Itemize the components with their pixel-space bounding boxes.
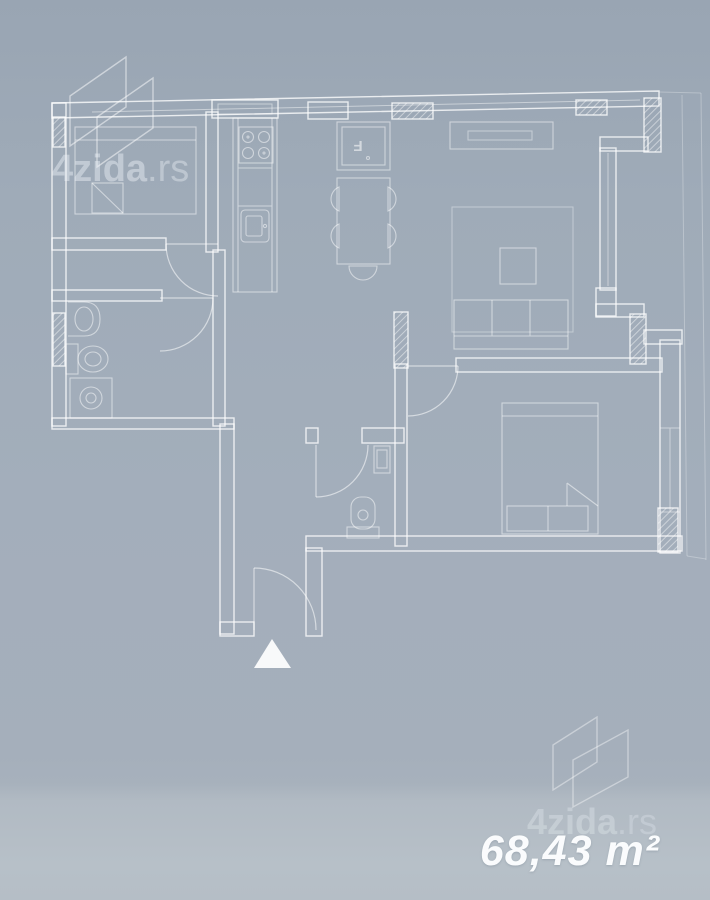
wall-wc-north [306,428,318,443]
floorplan-image: F 4zida.rs 4zida.rs 68,43 m² [0,0,710,900]
wall-corridor [213,250,225,426]
wall-bathroom-top [52,290,162,301]
wc-toilet [347,497,379,538]
wall-corridor [220,424,234,634]
wall-bathroom-bottom [52,418,234,429]
entrance-marker-triangle [254,639,291,668]
wall-hatch-column [394,312,408,368]
wall-hatch-window [53,117,65,147]
area-label: 68,43 m² [480,827,660,876]
wall-entrance-east [306,548,322,636]
bathroom-sink [68,302,100,336]
wall-hatch-pier [392,103,433,119]
wall-top [52,91,659,118]
wall-wc-bedroom2 [395,364,407,546]
terrace-outline [659,92,706,560]
wall-bedroom1-bottom [52,238,166,250]
window-glazing-bedroom2 [660,428,680,512]
watermark-brand: 4zida [52,148,147,190]
coffee-table [500,248,536,284]
window-frame-block [308,102,348,119]
wall-step [596,288,616,316]
doors [160,244,458,630]
door-bedroom2 [408,366,458,416]
tv-stand [450,122,553,149]
door-bathroom [160,298,213,351]
sofa [454,300,568,349]
wc-sink [374,446,390,473]
wall-hatch-column [644,98,661,152]
kitchen-counter [233,118,277,292]
toilet [66,344,108,374]
door-entrance [254,568,316,630]
dining-table [337,178,390,264]
wall-corridor [206,112,218,252]
floorplan-drawing: F [0,0,710,900]
stove [239,127,273,163]
wall-hatch-pier [576,100,607,115]
dining-chairs [331,187,396,280]
wall-wc-north [362,428,404,443]
logo-icon-bottom-right [553,717,628,807]
kitchen-sink [241,210,269,242]
window-glazing-top [92,100,640,112]
bed-double [502,403,598,534]
washing-machine [70,378,112,418]
watermark-text-top-left: 4zida.rs [52,150,189,188]
watermark-tld: .rs [147,148,189,190]
wall-hatch-window [53,313,65,366]
wall-step [600,137,648,151]
door-wc [316,445,368,497]
wall-step [644,330,682,344]
rug [452,207,573,332]
wall-hatch-corner [658,508,678,552]
fridge-label: F [353,137,362,154]
